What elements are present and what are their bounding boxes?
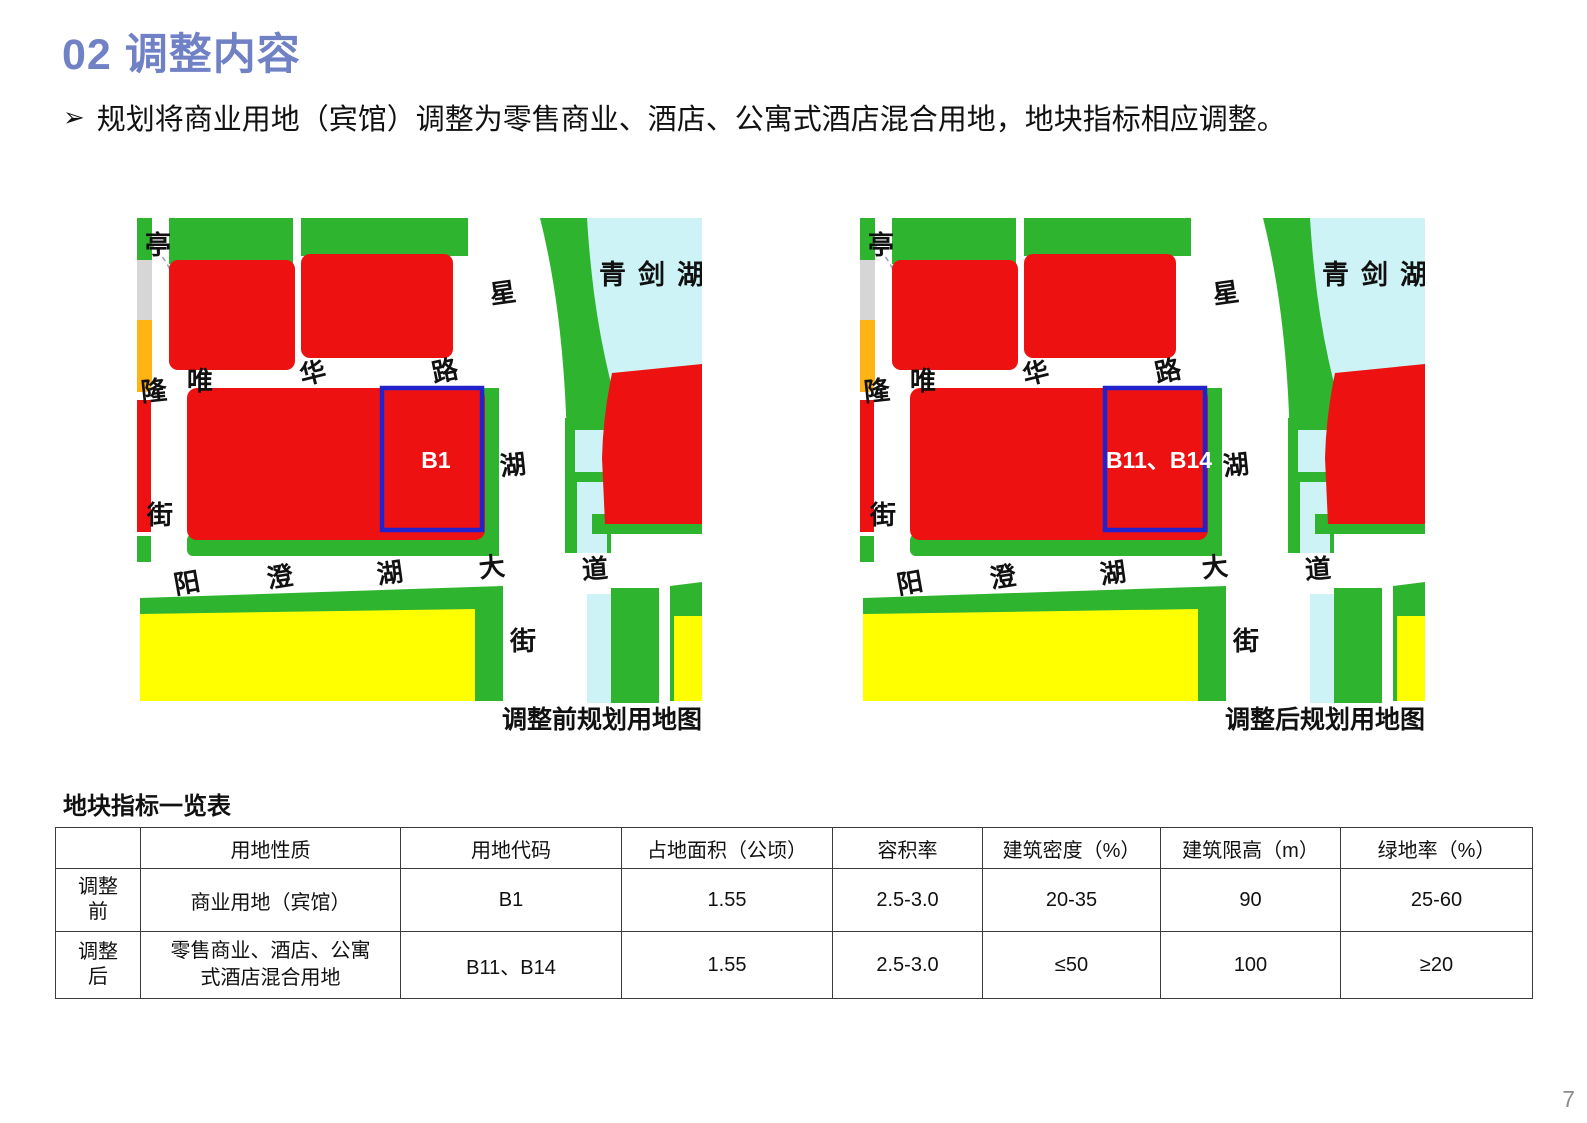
parcel-indicators-table: 用地性质 用地代码 占地面积（公顷） 容积率 建筑密度（%） 建筑限高（m） 绿… (55, 827, 1533, 999)
cell-far-after: 2.5-3.0 (833, 932, 983, 999)
cell-density-after: ≤50 (983, 932, 1161, 999)
arrow-bullet-icon: ➢ (63, 102, 85, 133)
summary-bullet: ➢ 规划将商业用地（宾馆）调整为零售商业、酒店、公寓式酒店混合用地，地块指标相应… (63, 96, 1286, 138)
header-far: 容积率 (833, 828, 983, 869)
summary-text: 规划将商业用地（宾馆）调整为零售商业、酒店、公寓式酒店混合用地，地块指标相应调整… (97, 96, 1286, 138)
cell-green-before: 25-60 (1341, 869, 1533, 932)
row-label-after: 调整后 (56, 932, 141, 999)
table-row-after: 调整后 零售商业、酒店、公寓式酒店混合用地 B11、B14 1.55 2.5-3… (56, 932, 1533, 999)
cell-area-before: 1.55 (622, 869, 833, 932)
header-green-ratio: 绿地率（%） (1341, 828, 1533, 869)
parcel-label-before: B1 (421, 447, 451, 473)
parcel-label-after: B11、B14 (1106, 447, 1212, 473)
cell-land-use-before: 商业用地（宾馆） (141, 869, 401, 932)
header-land-use: 用地性质 (141, 828, 401, 869)
page-title: 02 调整内容 (62, 20, 301, 82)
map-before-adjustment: B1 (137, 218, 702, 703)
cell-land-use-after: 零售商业、酒店、公寓式酒店混合用地 (141, 932, 401, 999)
map-after-adjustment: B11、B14 (860, 218, 1425, 703)
slide: 02 调整内容 ➢ 规划将商业用地（宾馆）调整为零售商业、酒店、公寓式酒店混合用… (0, 0, 1587, 1123)
header-corner (56, 828, 141, 869)
table-title: 地块指标一览表 (63, 786, 231, 821)
page-number: 7 (1562, 1086, 1575, 1113)
table-header-row: 用地性质 用地代码 占地面积（公顷） 容积率 建筑密度（%） 建筑限高（m） 绿… (56, 828, 1533, 869)
header-land-code: 用地代码 (401, 828, 622, 869)
cell-land-code-after: B11、B14 (401, 932, 622, 999)
cell-green-after: ≥20 (1341, 932, 1533, 999)
row-label-before: 调整前 (56, 869, 141, 932)
cell-height-after: 100 (1161, 932, 1341, 999)
cell-land-code-before: B1 (401, 869, 622, 932)
header-density: 建筑密度（%） (983, 828, 1161, 869)
cell-density-before: 20-35 (983, 869, 1161, 932)
header-area: 占地面积（公顷） (622, 828, 833, 869)
table-row-before: 调整前 商业用地（宾馆） B1 1.55 2.5-3.0 20-35 90 25… (56, 869, 1533, 932)
cell-height-before: 90 (1161, 869, 1341, 932)
caption-before-map: 调整前规划用地图 (137, 700, 702, 736)
cell-area-after: 1.55 (622, 932, 833, 999)
caption-after-map: 调整后规划用地图 (860, 700, 1425, 736)
cell-far-before: 2.5-3.0 (833, 869, 983, 932)
header-height-limit: 建筑限高（m） (1161, 828, 1341, 869)
